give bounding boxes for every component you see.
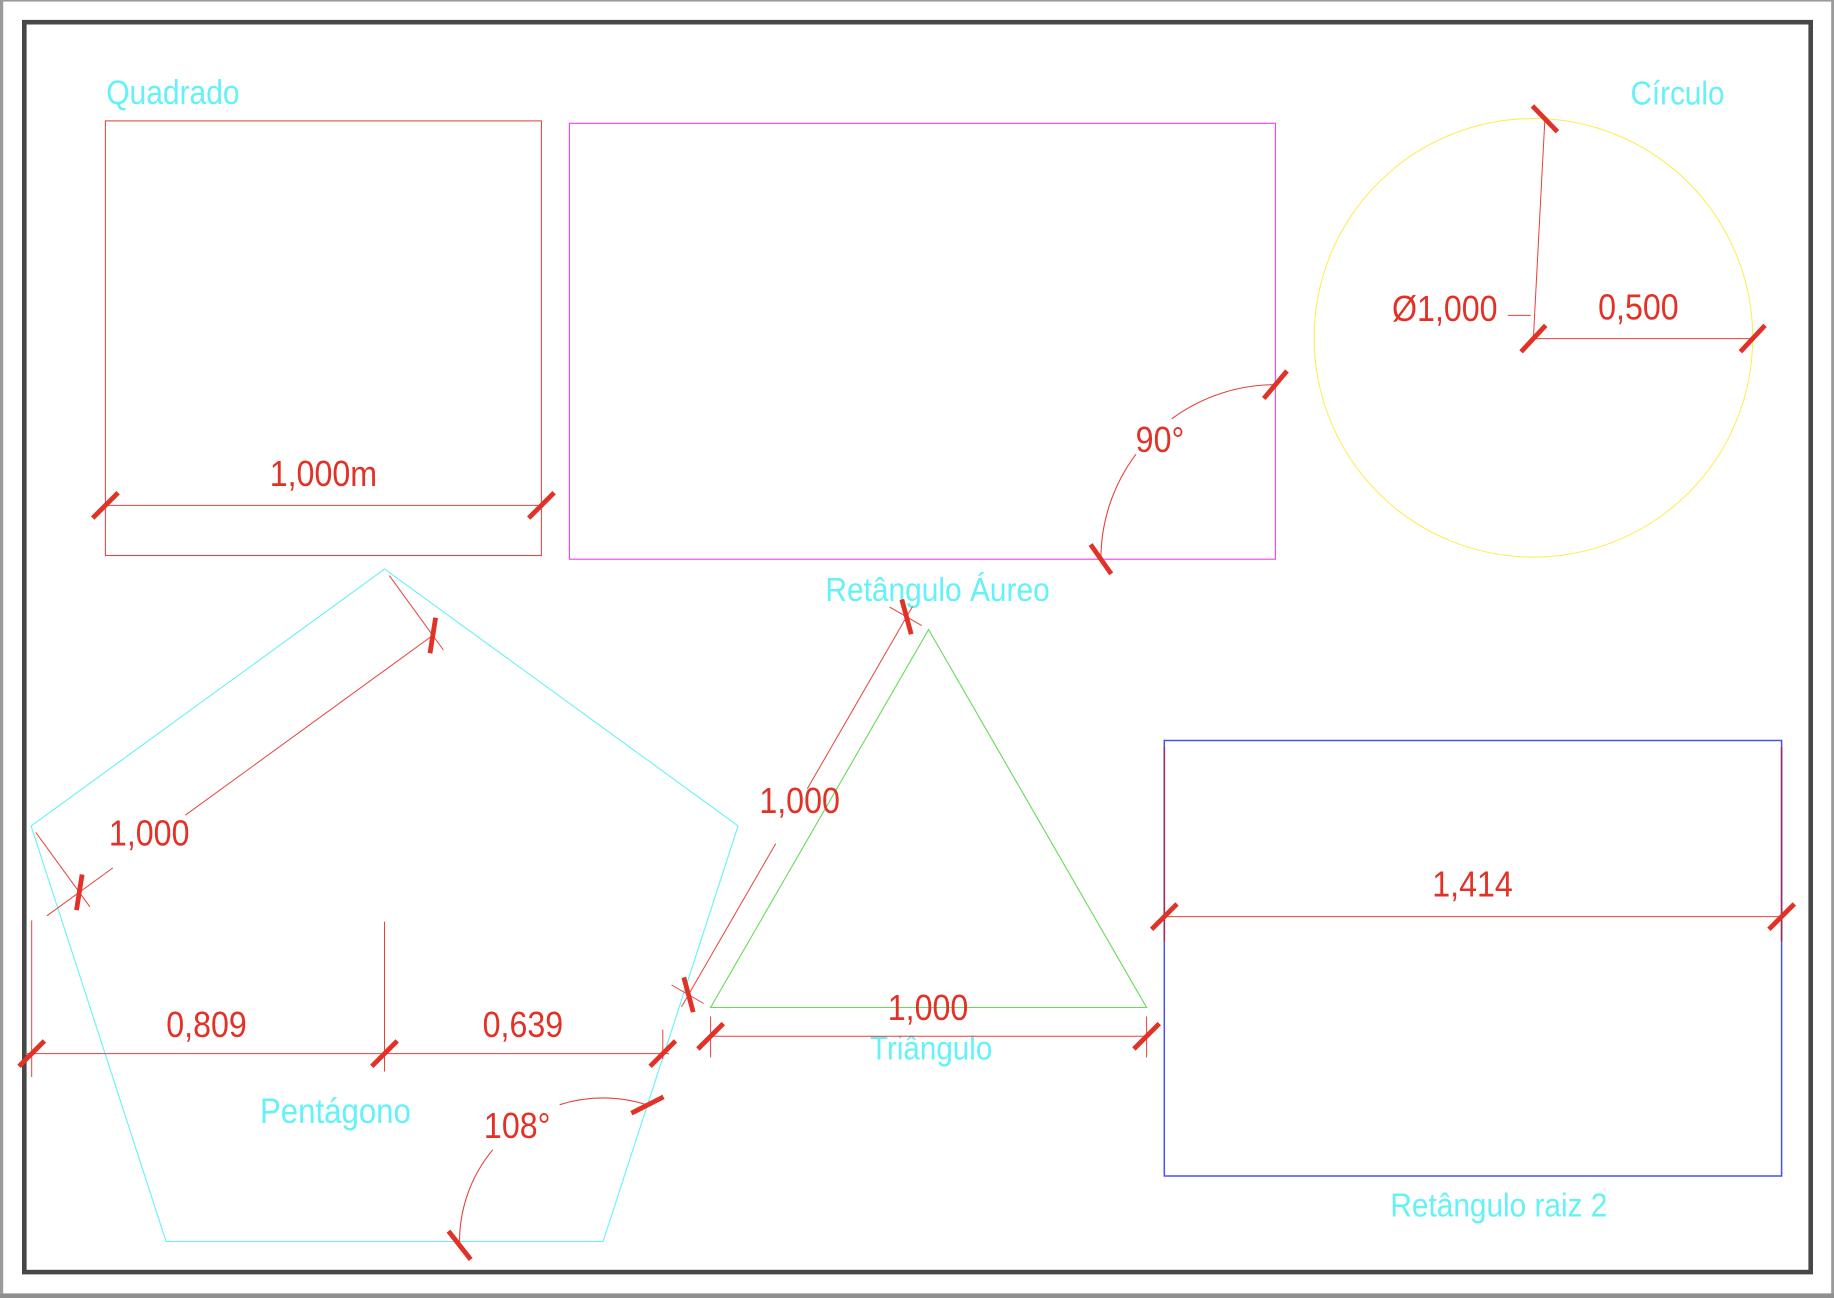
svg-text:1,000: 1,000 — [888, 988, 969, 1028]
svg-text:0,500: 0,500 — [1598, 288, 1679, 328]
svg-text:Triângulo: Triângulo — [870, 1029, 992, 1067]
svg-text:Retângulo Áureo: Retângulo Áureo — [825, 570, 1049, 608]
svg-text:Círculo: Círculo — [1631, 74, 1725, 112]
svg-text:Retângulo raiz 2: Retângulo raiz 2 — [1390, 1186, 1607, 1224]
svg-text:0,639: 0,639 — [483, 1005, 564, 1045]
svg-text:1,000m: 1,000m — [270, 454, 377, 494]
svg-text:0,809: 0,809 — [166, 1005, 247, 1045]
svg-text:Ø1,000: Ø1,000 — [1392, 289, 1498, 329]
svg-text:1,000: 1,000 — [759, 781, 840, 821]
svg-text:Pentágono: Pentágono — [260, 1092, 411, 1131]
svg-text:1,000: 1,000 — [109, 814, 190, 854]
svg-text:108°: 108° — [484, 1106, 551, 1146]
svg-text:Quadrado: Quadrado — [106, 73, 239, 111]
svg-text:90°: 90° — [1136, 420, 1185, 460]
svg-text:1,414: 1,414 — [1432, 865, 1513, 905]
